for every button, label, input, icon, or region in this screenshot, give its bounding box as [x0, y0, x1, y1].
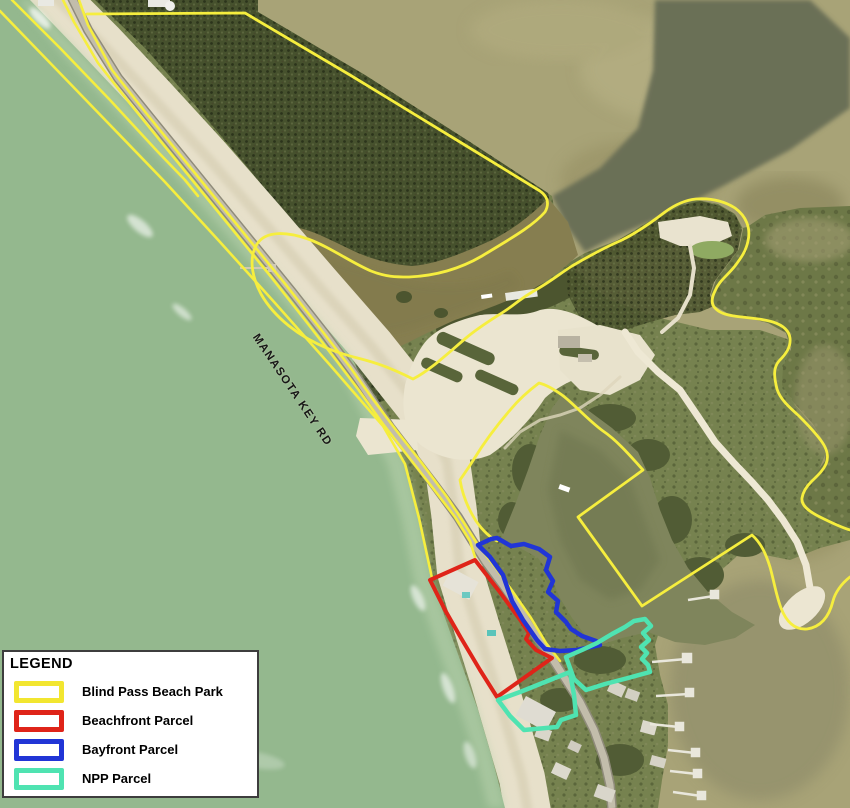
- legend-title: LEGEND: [10, 656, 257, 672]
- pavilion: [558, 336, 580, 348]
- legend-row: Beachfront Parcel: [4, 706, 257, 735]
- park-boundary-swatch-icon: [14, 681, 64, 703]
- legend-row: Bayfront Parcel: [4, 735, 257, 764]
- pool: [487, 630, 496, 636]
- legend-label: Beachfront Parcel: [82, 713, 193, 728]
- aerial-parcel-map-screenshot: MANASOTA KEY RD LEGEND Blind Pass Beach …: [0, 0, 850, 808]
- legend-label: NPP Parcel: [82, 771, 151, 786]
- legend-label: Bayfront Parcel: [82, 742, 178, 757]
- legend-label: Blind Pass Beach Park: [82, 684, 223, 699]
- beachfront-parcel-swatch-icon: [14, 710, 64, 732]
- pond-island: [434, 308, 448, 318]
- peninsula-lawn: [690, 241, 734, 259]
- pond-island: [396, 291, 412, 303]
- legend-row: Blind Pass Beach Park: [4, 677, 257, 706]
- pavilion: [578, 354, 592, 362]
- npp-parcel-swatch-icon: [14, 768, 64, 790]
- pool: [462, 592, 470, 598]
- bayfront-parcel-swatch-icon: [14, 739, 64, 761]
- legend-panel: LEGEND Blind Pass Beach Park Beachfront …: [2, 650, 259, 798]
- legend-row: NPP Parcel: [4, 764, 257, 793]
